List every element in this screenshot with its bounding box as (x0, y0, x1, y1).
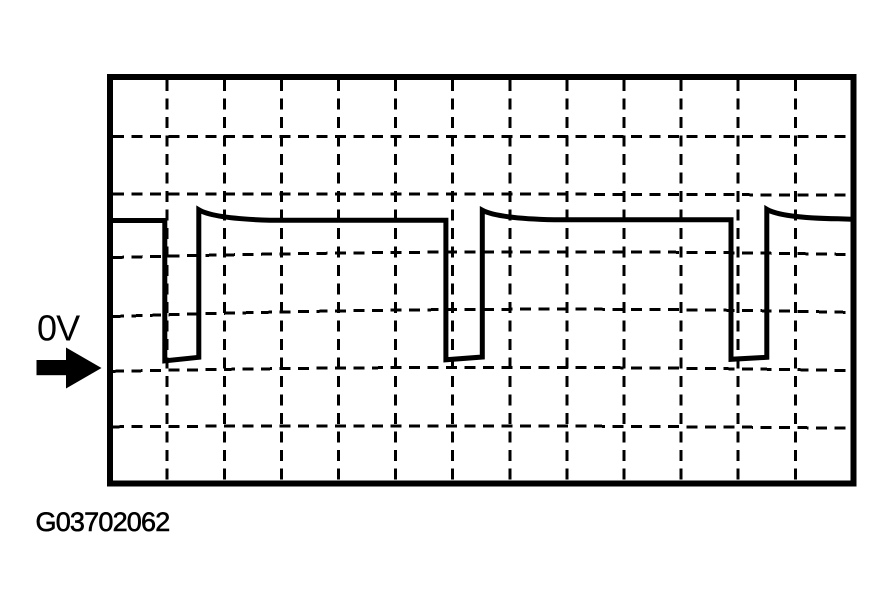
svg-text:0V: 0V (37, 308, 80, 349)
svg-text:G03702062: G03702062 (36, 507, 170, 537)
